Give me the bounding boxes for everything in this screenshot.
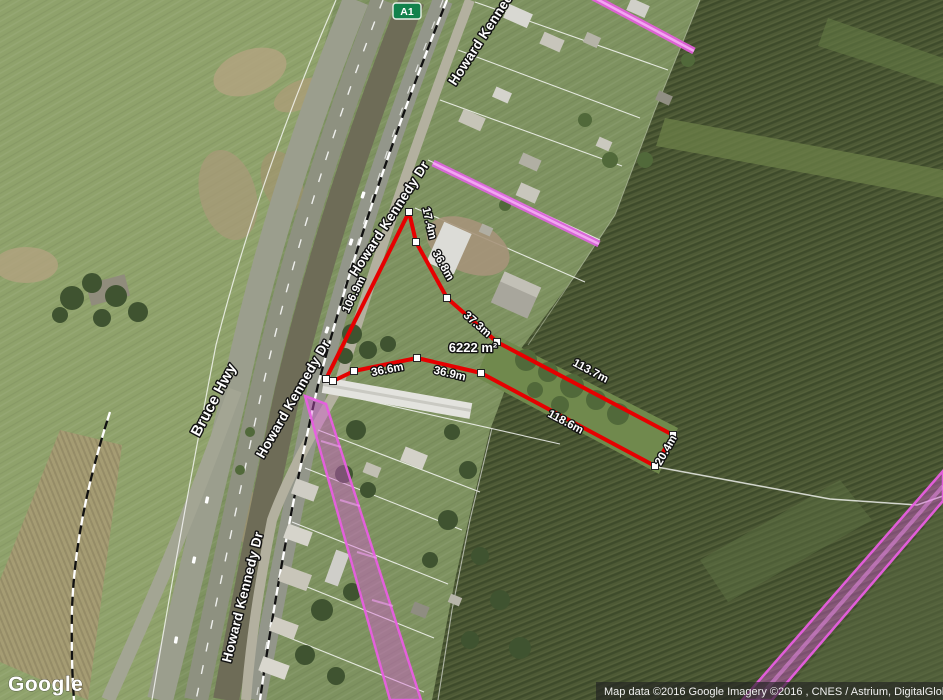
attribution-bar: Map data ©2016 Google Imagery ©2016 , CN… [596,682,943,700]
google-logo[interactable]: Google [8,673,83,696]
route-shield-a1: A1 [393,3,421,19]
attribution-text: Map data ©2016 Google Imagery ©2016 , CN… [604,686,943,698]
map-canvas[interactable]: 17.4m 36.8m 37.3m 106.9m 36.6m 36.9m 113… [0,0,943,700]
route-shield-label: A1 [400,6,414,18]
area-label: 6222 m² [449,340,498,355]
